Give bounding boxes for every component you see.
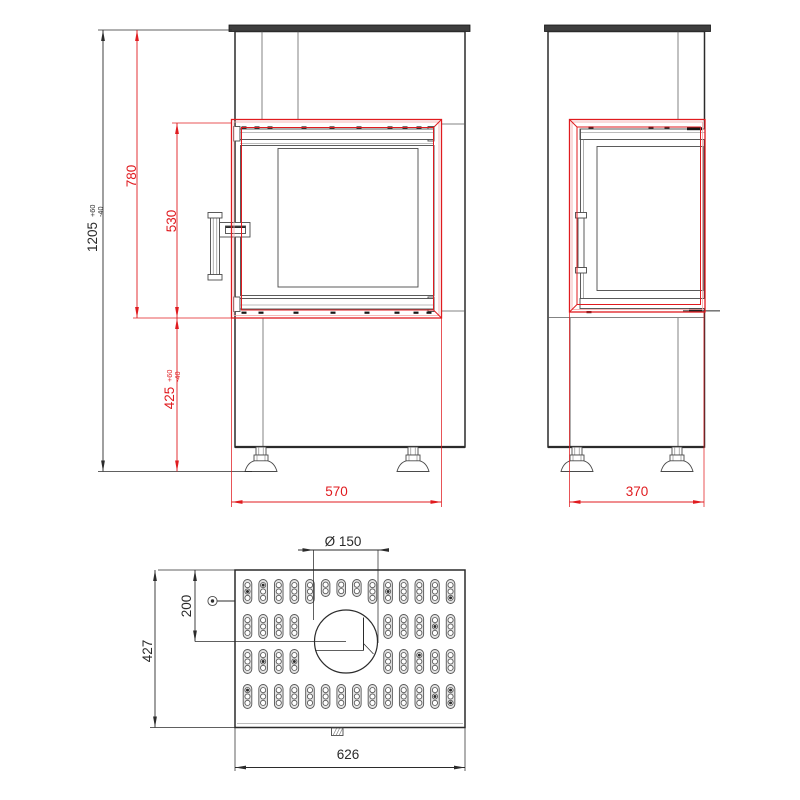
vent-hole	[276, 694, 281, 699]
vent-hole	[261, 630, 266, 635]
vent-hole	[432, 653, 437, 658]
vent-hole	[354, 582, 359, 587]
vent-hole	[401, 700, 406, 705]
vent-hole	[417, 595, 422, 600]
vent-hole	[261, 694, 266, 699]
vent-hole-screw	[449, 701, 452, 704]
vent-hole	[448, 624, 453, 629]
vent-hole	[417, 630, 422, 635]
vent-hole-screw	[262, 660, 265, 663]
vent-hole	[339, 700, 344, 705]
vent-hole	[370, 694, 375, 699]
top-view	[208, 570, 465, 736]
top-plate-front	[229, 25, 470, 32]
vent-hole	[307, 583, 312, 588]
vent-hole	[354, 589, 359, 594]
vent-hole	[385, 630, 390, 635]
vent-hole	[432, 688, 437, 693]
vent-hole	[370, 589, 375, 594]
vent-hole	[339, 589, 344, 594]
vent-hole	[245, 618, 250, 623]
vent-hole-screw	[449, 596, 452, 599]
vent-hole	[448, 653, 453, 658]
vent-hole	[448, 694, 453, 699]
vent-hole	[292, 653, 297, 658]
vent-hole	[370, 583, 375, 588]
vent-hole	[292, 700, 297, 705]
vent-hole	[432, 665, 437, 670]
vent-hole	[401, 665, 406, 670]
vent-hole-screw	[246, 689, 249, 692]
vent-hole	[401, 694, 406, 699]
vent-hole	[385, 665, 390, 670]
foot-front-right	[397, 447, 429, 472]
dim-label-flue-diameter: Ø 150	[325, 534, 362, 549]
vent-hole	[385, 618, 390, 623]
damper-knob	[208, 596, 235, 605]
vent-hole	[245, 595, 250, 600]
vent-hole	[323, 700, 328, 705]
vent-hole	[370, 700, 375, 705]
vent-hole	[385, 653, 390, 658]
dim-label-flue-offset: 200	[179, 595, 194, 618]
vent-hole	[276, 589, 281, 594]
vent-hole	[432, 595, 437, 600]
top-plate-side	[545, 25, 711, 32]
vent-hole	[276, 583, 281, 588]
vent-hole	[370, 595, 375, 600]
vent-hole	[307, 694, 312, 699]
vent-hole	[245, 624, 250, 629]
vent-hole	[401, 624, 406, 629]
vent-hole	[292, 624, 297, 629]
vent-hole	[292, 688, 297, 693]
vent-hole	[245, 700, 250, 705]
vent-hole	[307, 589, 312, 594]
vent-hole	[432, 659, 437, 664]
vent-hole	[276, 595, 281, 600]
vent-hole	[276, 630, 281, 635]
dimension-top-width: 626	[235, 728, 465, 771]
vent-hole-screw	[293, 660, 296, 663]
vent-hole	[323, 589, 328, 594]
vent-hole	[432, 583, 437, 588]
dimension-base-height: 425 +60 -40	[162, 318, 182, 472]
dimension-top-depth: 427	[140, 570, 235, 728]
vent-hole	[432, 618, 437, 623]
vent-hole	[432, 589, 437, 594]
vent-hole	[261, 589, 266, 594]
vent-hole	[432, 700, 437, 705]
vent-hole	[339, 688, 344, 693]
vent-hole	[323, 688, 328, 693]
foot-side-back	[661, 447, 693, 472]
vent-hole	[448, 630, 453, 635]
vent-hole	[245, 583, 250, 588]
vent-hole	[307, 688, 312, 693]
vent-hole	[276, 618, 281, 623]
dimension-door-height: 530	[164, 123, 232, 318]
vent-hole	[401, 618, 406, 623]
vent-hole	[261, 618, 266, 623]
dim-label-top-depth: 427	[140, 640, 155, 663]
dim-tol-minus: -40	[96, 206, 105, 217]
vent-hole	[276, 659, 281, 664]
vent-hole	[292, 595, 297, 600]
vent-hole	[385, 624, 390, 629]
vent-hole-screw	[433, 625, 436, 628]
vent-hole-screw	[387, 590, 390, 593]
vent-hole	[354, 700, 359, 705]
vent-hole	[401, 630, 406, 635]
vent-hole	[261, 595, 266, 600]
vent-hole	[339, 694, 344, 699]
vent-hole	[385, 700, 390, 705]
vent-hole	[307, 595, 312, 600]
vent-hole	[245, 630, 250, 635]
vent-hole	[292, 665, 297, 670]
vent-hole	[370, 688, 375, 693]
vent-hole	[385, 688, 390, 693]
vent-hole	[417, 700, 422, 705]
dim-label-base-height: 425	[162, 387, 177, 410]
stove-body-side	[548, 32, 705, 448]
vent-hole	[292, 589, 297, 594]
vent-hole	[401, 653, 406, 658]
vent-hole	[385, 659, 390, 664]
vent-hole	[417, 589, 422, 594]
vent-hole	[323, 694, 328, 699]
vent-hole	[292, 694, 297, 699]
foot-front-left	[245, 447, 277, 472]
vent-hole	[339, 582, 344, 587]
vent-hole	[417, 665, 422, 670]
vent-hole	[261, 653, 266, 658]
vent-hole	[245, 694, 250, 699]
vent-hole	[417, 624, 422, 629]
vent-hole-screw	[433, 695, 436, 698]
dim-label-top-width: 626	[337, 747, 360, 762]
vent-hole	[276, 665, 281, 670]
technical-drawing: 1205 +60 -40 200 427 626	[0, 0, 800, 800]
vent-hole	[323, 582, 328, 587]
vent-hole	[401, 595, 406, 600]
vent-hole	[292, 618, 297, 623]
stove-body-front	[235, 32, 465, 448]
vent-hole	[261, 700, 266, 705]
vent-hole	[417, 618, 422, 623]
vent-hole	[276, 653, 281, 658]
vent-hole	[245, 653, 250, 658]
vent-hole	[276, 688, 281, 693]
side-view	[545, 25, 721, 472]
vent-hole	[245, 659, 250, 664]
dim-tol-minus: -40	[173, 371, 182, 382]
vent-hole	[385, 595, 390, 600]
dim-label-total-height: 1205	[85, 222, 100, 252]
front-view	[208, 25, 470, 472]
vent-hole	[401, 688, 406, 693]
vent-hole-screw	[246, 590, 249, 593]
vent-hole	[448, 583, 453, 588]
dim-label-firebox-height: 780	[124, 165, 139, 188]
vent-hole	[354, 694, 359, 699]
vent-hole	[261, 688, 266, 693]
vent-hole	[432, 630, 437, 635]
vent-hole	[307, 700, 312, 705]
vent-hole	[354, 688, 359, 693]
vent-hole	[401, 583, 406, 588]
vent-hole	[448, 665, 453, 670]
dim-label-door-height: 530	[164, 210, 179, 233]
foot-side-front	[561, 447, 593, 472]
vent-hole-screw	[418, 654, 421, 657]
dim-label-firebox-depth: 370	[626, 484, 649, 499]
vent-hole	[401, 589, 406, 594]
vent-hole	[448, 589, 453, 594]
vent-hole	[385, 694, 390, 699]
vent-hole	[417, 688, 422, 693]
dim-label-firebox-width: 570	[325, 484, 348, 499]
vent-hole	[417, 694, 422, 699]
vent-hole-screw	[449, 689, 452, 692]
rear-bracket	[332, 728, 344, 736]
vent-hole	[448, 659, 453, 664]
vent-hole	[417, 583, 422, 588]
vent-hole	[261, 665, 266, 670]
vent-hole	[276, 624, 281, 629]
vent-hole	[385, 583, 390, 588]
vent-hole	[292, 630, 297, 635]
vent-hole	[417, 659, 422, 664]
vent-hole	[245, 665, 250, 670]
vent-hole	[261, 624, 266, 629]
vent-hole	[292, 583, 297, 588]
vent-hole-screw	[262, 584, 265, 587]
vent-hole	[276, 700, 281, 705]
vent-hole	[448, 618, 453, 623]
vent-hole	[401, 659, 406, 664]
